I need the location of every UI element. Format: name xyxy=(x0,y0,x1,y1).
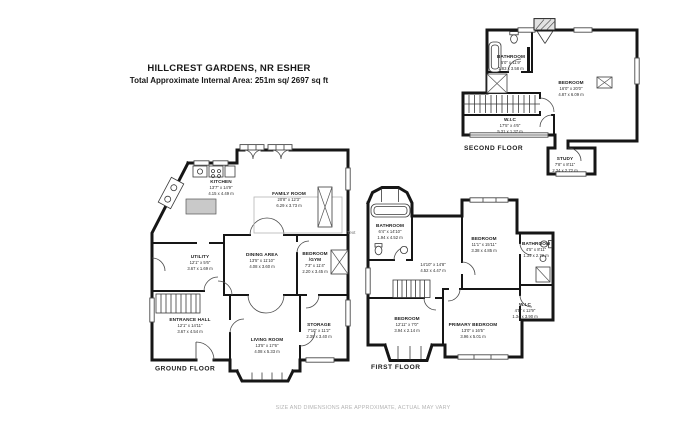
dining-area-dim-metric: 4.08 x 3.60 m xyxy=(249,264,275,269)
window xyxy=(150,298,154,322)
window xyxy=(635,58,639,84)
first-floor-label: FIRST FLOOR xyxy=(371,364,420,371)
double-door-leaves xyxy=(537,31,553,44)
window xyxy=(574,28,592,32)
living-room-dim-metric: 4.08 x 5.33 m xyxy=(254,349,280,354)
entrance-hall-dim-metric: 3.67 x 4.54 m xyxy=(177,329,203,334)
dining-area-label: DINING AREA xyxy=(246,252,278,257)
gym-dim-metric: 2.20 x 3.45 m xyxy=(302,269,328,274)
bathroom-dim-imperial: 6'4" x 14'10" xyxy=(379,229,402,234)
family-room-dim-imperial: 20'8" x 12'3" xyxy=(278,197,301,202)
kitchen-corner-unit xyxy=(158,177,184,208)
landing-dim-metric: 4.52 x 4.47 m xyxy=(420,268,446,273)
entrance-hall-dim-imperial: 12'1" x 14'11" xyxy=(178,323,203,328)
ground-floor-label: GROUND FLOOR xyxy=(155,366,215,373)
kitchen-label: KITCHEN xyxy=(210,179,232,184)
header: HILLCREST GARDENS, NR ESHER Total Approx… xyxy=(130,63,329,85)
storage-dim-metric: 2.39 x 3.40 m xyxy=(306,334,332,339)
wic-dim-imperial: 4'5" x 12'9" xyxy=(515,308,536,313)
utility-dim-imperial: 12'1" x 5'6" xyxy=(190,260,211,265)
bathtub-icon xyxy=(371,204,410,217)
bay-window-mullions xyxy=(398,346,421,360)
bay-window-mullions xyxy=(382,189,399,203)
bathroom2-label: BATHROOM xyxy=(522,241,550,246)
bedroom-label: BEDROOM xyxy=(558,80,583,85)
sink-icon xyxy=(197,169,202,174)
gym-label: BEDROOM xyxy=(302,251,327,256)
gym-alt-label: /GYM xyxy=(309,257,321,262)
stairs-outline xyxy=(156,294,200,313)
toilet-icon xyxy=(375,246,382,255)
study-dim-imperial: 7'8" x 8'11" xyxy=(555,162,576,167)
window xyxy=(306,358,334,362)
living-room-dim-imperial: 13'5" x 17'6" xyxy=(256,343,279,348)
storage-label: STORAGE xyxy=(307,322,331,327)
bay-window xyxy=(268,145,292,150)
kitchen-unit xyxy=(225,166,235,177)
wic-dim-metric: 5.31 x 1.37 m xyxy=(497,129,523,134)
bedroom-label: BEDROOM xyxy=(471,236,496,241)
first-floor-plan: BATHROOM 6'4" x 14'10" 1.94 x 4.52 m BED… xyxy=(347,188,553,372)
window xyxy=(213,161,228,165)
bay-window-mullions xyxy=(252,373,282,381)
bedroom-dim-imperial: 16'0" x 20'0" xyxy=(560,86,583,91)
kitchen-dim-metric: 4.15 x 4.49 m xyxy=(208,191,234,196)
ground-stairs xyxy=(156,294,200,313)
disclaimer-text: SIZE AND DIMENSIONS ARE APPROXIMATE, ACT… xyxy=(276,405,451,411)
utility-label: UTILITY xyxy=(191,254,210,259)
primary-bedroom-label: PRIMARY BEDROOM xyxy=(449,322,498,327)
window xyxy=(470,198,508,202)
study-label: STUDY xyxy=(557,156,574,161)
door-leaf xyxy=(527,47,530,72)
landing-dim-imperial: 14'10" x 14'8" xyxy=(420,262,446,267)
bedroom-dim-imperial: 11'1" x 15'11" xyxy=(472,242,497,247)
living-room-label: LIVING ROOM xyxy=(251,337,284,342)
wic-dim-imperial: 17'5" x 4'6" xyxy=(500,123,521,128)
kitchen-island xyxy=(186,199,216,214)
family-room-label: FAMILY ROOM xyxy=(272,191,306,196)
entrance-hall-label: ENTRANCE HALL xyxy=(169,317,210,322)
second-floor-plan: BATHROOM 6'0" x 11'9" 1.83 x 3.58 m BEDR… xyxy=(463,19,639,177)
dining-area-dim-imperial: 13'5" x 11'10" xyxy=(250,258,275,263)
toilet-tank xyxy=(510,32,518,35)
gym-dim-imperial: 7'3" x 11'4" xyxy=(305,263,326,268)
bay-window xyxy=(240,145,264,150)
toilet-icon xyxy=(511,35,518,43)
bathroom-dim-metric: 1.94 x 4.52 m xyxy=(377,235,403,240)
utility-dim-metric: 3.67 x 1.69 m xyxy=(187,266,213,271)
bathroom2-dim-metric: 1.34 x 2.72 m xyxy=(523,253,549,258)
window xyxy=(346,300,350,326)
primary-bedroom-dim-metric: 3.96 x 5.01 m xyxy=(460,334,486,339)
bathroom-label: BATHROOM xyxy=(376,223,404,228)
window xyxy=(366,268,370,294)
bathroom-dim-imperial: 6'0" x 11'9" xyxy=(501,60,522,65)
page-subtitle: Total Approximate Internal Area: 251m sq… xyxy=(130,76,329,85)
primary-bedroom-dim-imperial: 13'0" x 16'5" xyxy=(462,328,485,333)
ground-floor-plan: KITCHEN 13'7" x 14'9" 4.15 x 4.49 m FAMI… xyxy=(150,145,350,381)
first-stairs xyxy=(393,280,430,298)
bedroom-dim-metric: 3.38 x 4.85 m xyxy=(471,248,497,253)
bedroom2-dim-metric: 3.94 x 2.14 m xyxy=(394,328,420,333)
window xyxy=(518,28,535,32)
second-floor-label: SECOND FLOOR xyxy=(464,145,523,152)
window xyxy=(346,168,350,190)
wic-label: W.I.C xyxy=(519,302,531,307)
bedroom-dim-metric: 4.87 x 6.09 m xyxy=(558,92,584,97)
sink-icon xyxy=(400,246,407,253)
family-room-dim-metric: 6.29 x 3.73 m xyxy=(276,203,302,208)
window xyxy=(194,161,209,165)
floorplan-page: HILLCREST GARDENS, NR ESHER Total Approx… xyxy=(0,0,700,437)
storage-dim-imperial: 7'10" x 11'2" xyxy=(308,328,331,333)
window xyxy=(458,355,508,359)
second-stairs xyxy=(463,95,540,113)
kitchen-dim-imperial: 13'7" x 14'9" xyxy=(210,185,233,190)
bedroom2-dim-imperial: 12'11" x 7'0" xyxy=(396,322,419,327)
wic-dim-metric: 1.34 x 3.90 m xyxy=(512,314,538,319)
text-annotation: Text xyxy=(347,230,356,235)
wic-label: W.I.C xyxy=(504,117,516,122)
bathroom2-dim-imperial: 4'5" x 8'11" xyxy=(526,247,547,252)
bedroom2-label: BEDROOM xyxy=(394,316,419,321)
bathroom-dim-metric: 1.83 x 3.58 m xyxy=(498,66,524,71)
study-dim-metric: 2.34 x 2.72 m xyxy=(552,168,578,173)
bathroom-label: BATHROOM xyxy=(497,54,525,59)
page-title: HILLCREST GARDENS, NR ESHER xyxy=(147,63,310,74)
floorplan-svg: HILLCREST GARDENS, NR ESHER Total Approx… xyxy=(0,0,700,437)
